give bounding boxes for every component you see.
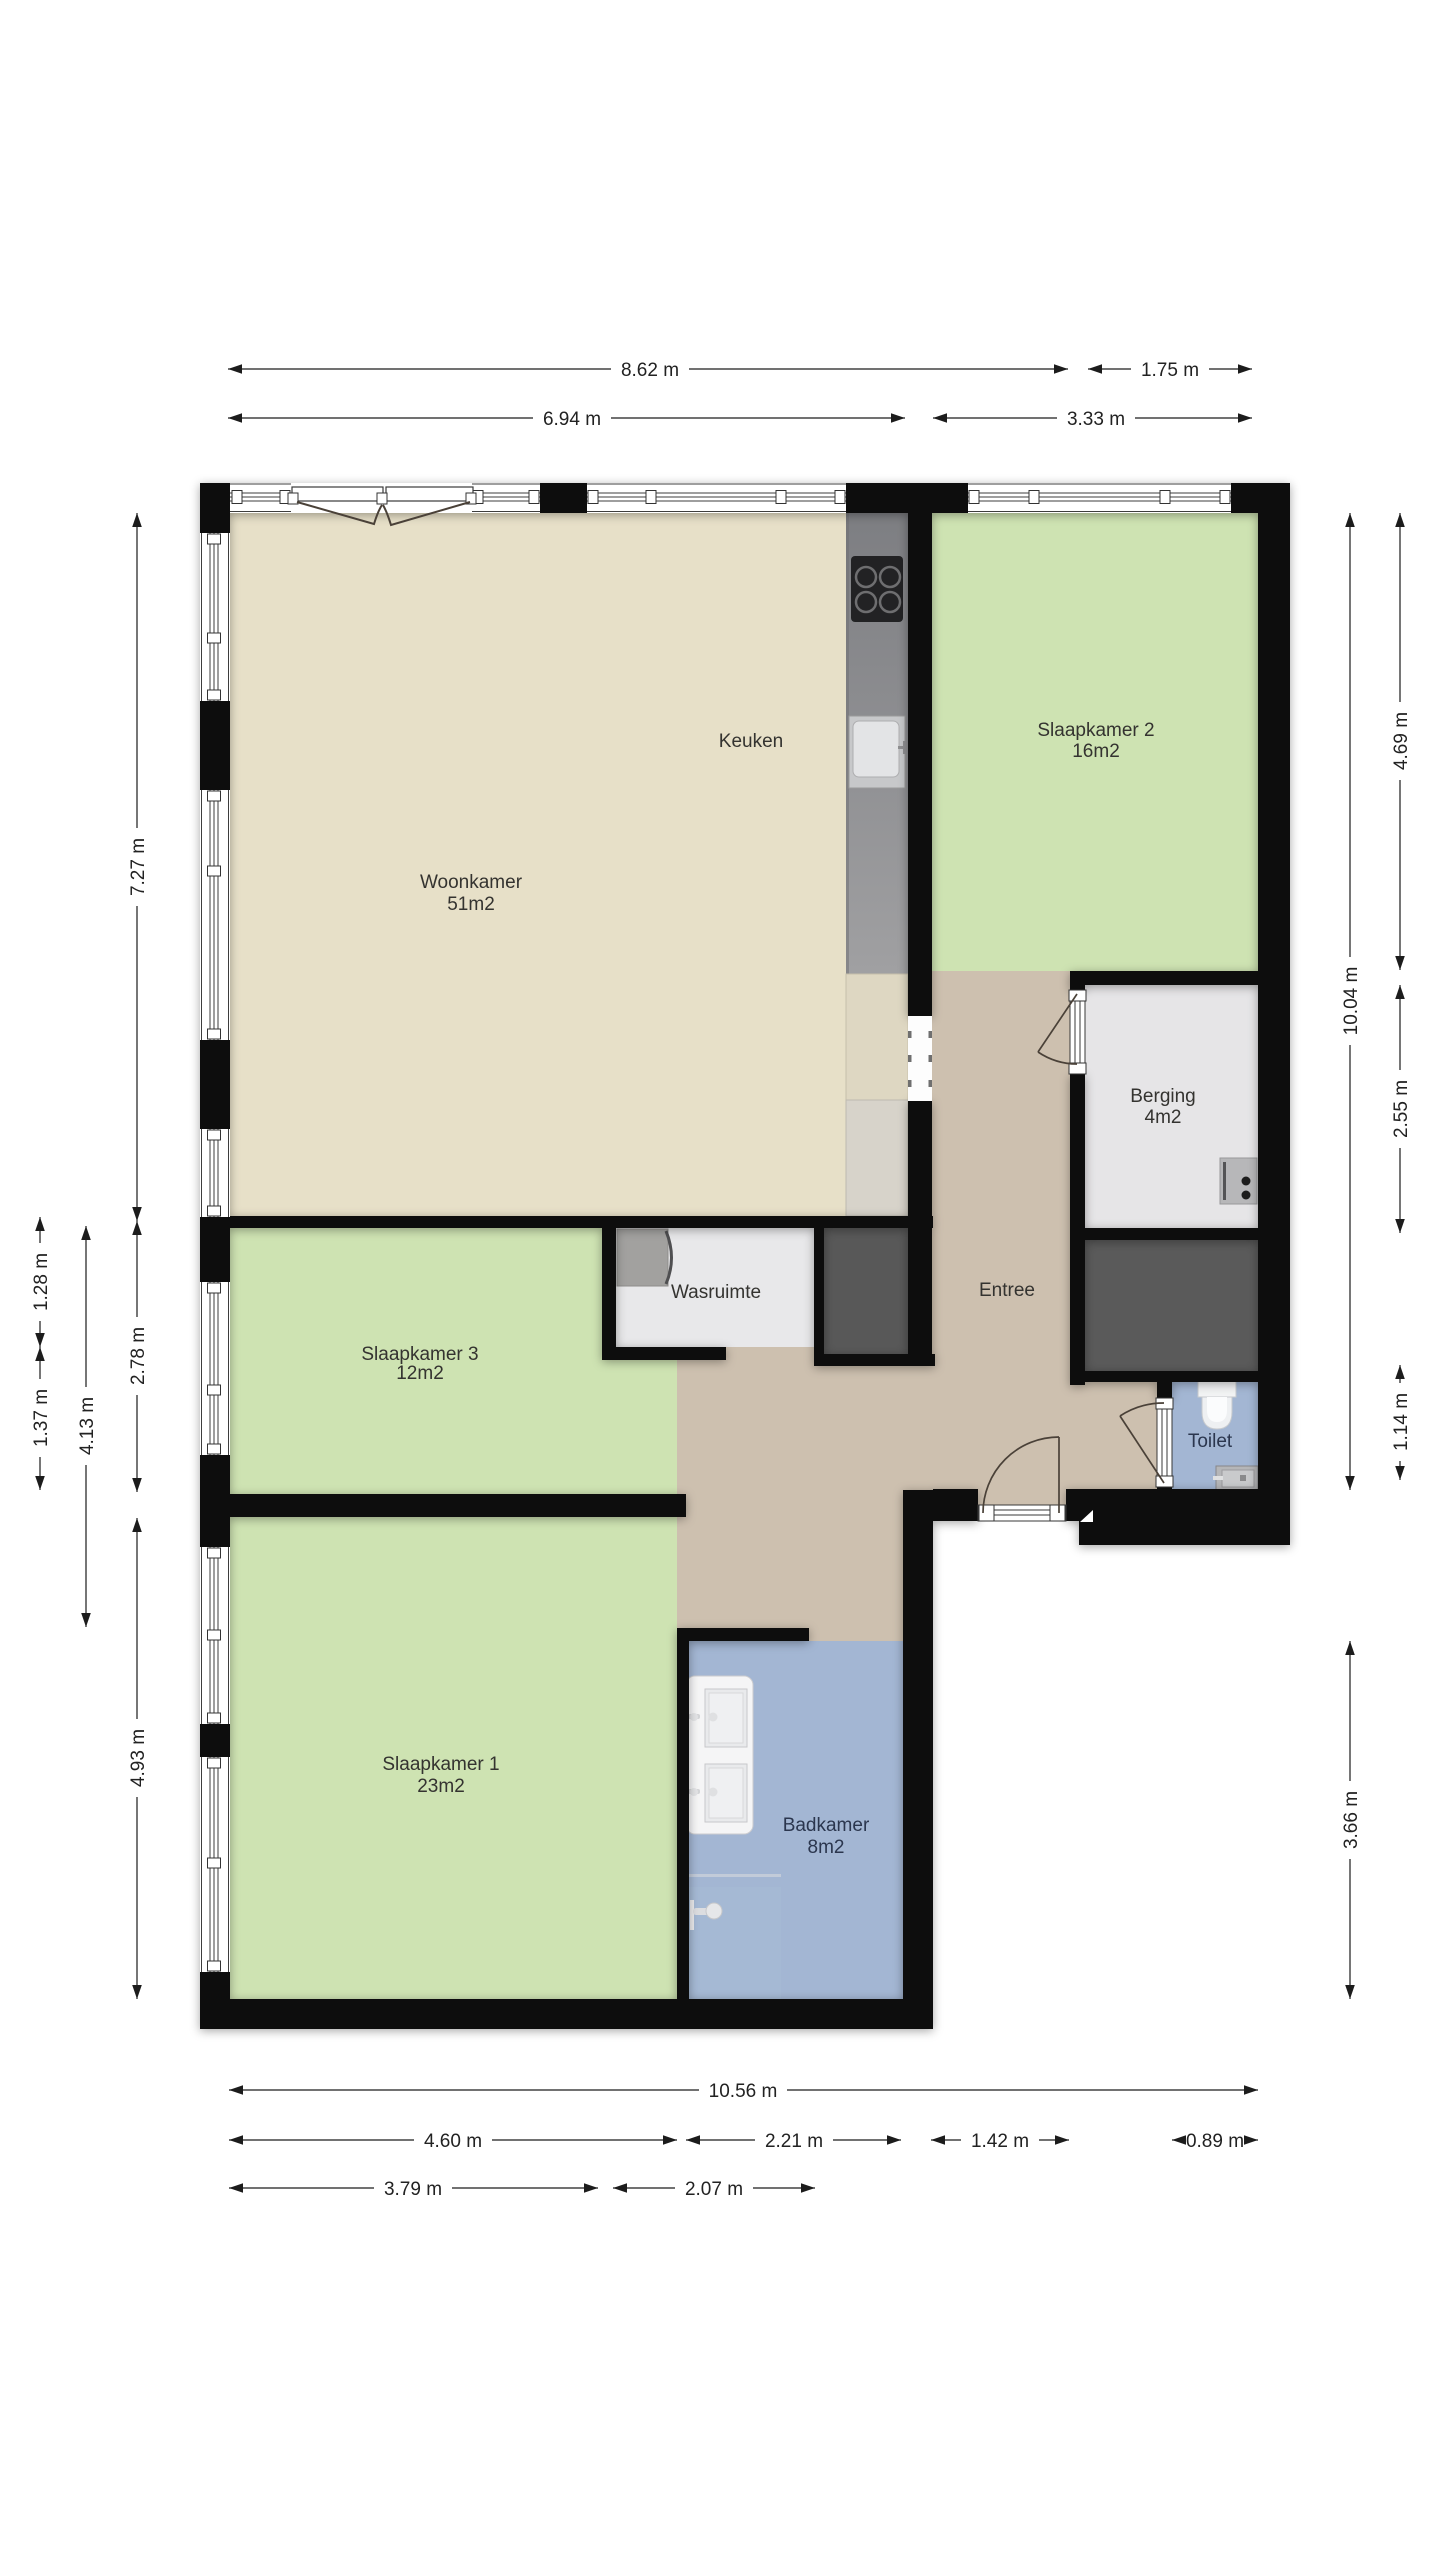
svg-text:10.56 m: 10.56 m xyxy=(709,2081,778,2102)
svg-text:Badkamer: Badkamer xyxy=(783,1815,870,1836)
svg-text:2.07 m: 2.07 m xyxy=(685,2179,743,2200)
svg-text:3.79 m: 3.79 m xyxy=(384,2179,442,2200)
svg-text:12m2: 12m2 xyxy=(396,1363,444,1384)
svg-text:2.55 m: 2.55 m xyxy=(1391,1080,1412,1138)
svg-text:Berging: Berging xyxy=(1130,1086,1196,1107)
svg-text:23m2: 23m2 xyxy=(417,1776,465,1797)
svg-text:51m2: 51m2 xyxy=(447,894,495,915)
svg-text:3.33 m: 3.33 m xyxy=(1067,409,1125,430)
svg-text:1.37 m: 1.37 m xyxy=(31,1389,52,1447)
svg-text:4.93 m: 4.93 m xyxy=(128,1729,149,1787)
svg-text:4m2: 4m2 xyxy=(1145,1107,1182,1128)
svg-text:Woonkamer: Woonkamer xyxy=(420,872,523,893)
svg-text:3.66 m: 3.66 m xyxy=(1341,1791,1362,1849)
svg-text:1.14 m: 1.14 m xyxy=(1391,1393,1412,1451)
svg-text:Slaapkamer 2: Slaapkamer 2 xyxy=(1037,720,1154,741)
svg-text:Slaapkamer 1: Slaapkamer 1 xyxy=(382,1754,499,1775)
svg-text:1.75 m: 1.75 m xyxy=(1141,360,1199,381)
svg-text:2.78 m: 2.78 m xyxy=(128,1327,149,1385)
svg-text:8m2: 8m2 xyxy=(808,1837,845,1858)
svg-text:10.04 m: 10.04 m xyxy=(1341,967,1362,1036)
svg-text:Wasruimte: Wasruimte xyxy=(671,1282,761,1303)
svg-text:4.13 m: 4.13 m xyxy=(77,1397,98,1455)
svg-text:4.60 m: 4.60 m xyxy=(424,2131,482,2152)
svg-text:2.21 m: 2.21 m xyxy=(765,2131,823,2152)
svg-text:Entree: Entree xyxy=(979,1280,1035,1301)
svg-text:8.62 m: 8.62 m xyxy=(621,360,679,381)
svg-text:Toilet: Toilet xyxy=(1188,1431,1233,1452)
svg-text:6.94 m: 6.94 m xyxy=(543,409,601,430)
svg-text:1.42 m: 1.42 m xyxy=(971,2131,1029,2152)
svg-text:7.27 m: 7.27 m xyxy=(128,838,149,896)
svg-text:0.89 m: 0.89 m xyxy=(1186,2131,1244,2152)
svg-text:1.28 m: 1.28 m xyxy=(31,1253,52,1311)
svg-text:4.69 m: 4.69 m xyxy=(1391,712,1412,770)
svg-text:Keuken: Keuken xyxy=(719,731,783,752)
svg-text:Slaapkamer 3: Slaapkamer 3 xyxy=(361,1344,478,1365)
svg-text:16m2: 16m2 xyxy=(1072,741,1120,762)
